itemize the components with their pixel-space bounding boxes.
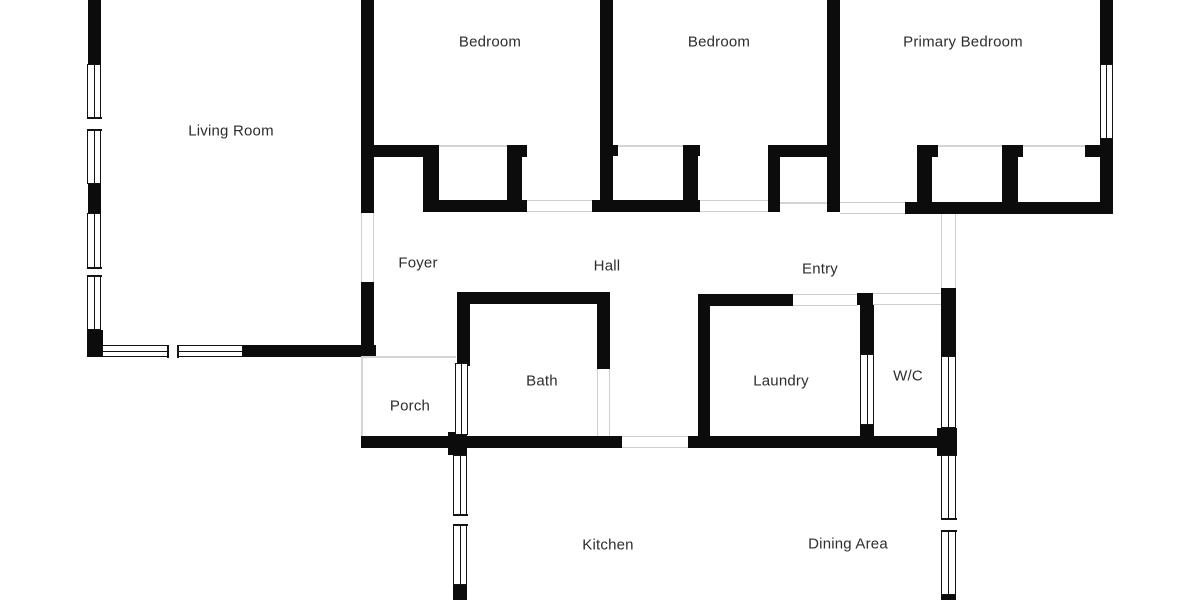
wall-primary-closet-a-left-stub [917,145,938,157]
room-label-foyer: Foyer [398,255,437,272]
room-label-entry: Entry [802,261,838,278]
room-label-bedroom-2: Bedroom [688,34,750,51]
entry-nook-opening-line [780,202,827,204]
wall-bath-east [597,292,610,369]
window-divider [87,267,102,277]
door-opening-bedroom2 [700,200,768,212]
wall-primary-east-mid [1100,138,1113,214]
wall-bedroom1-bedroom2-divider [600,0,613,212]
window-dining-east [941,455,956,595]
wall-bedroom1-closet-right-stub [507,145,527,157]
door-opening-wc [873,293,941,305]
window-wc-east [941,356,956,428]
window-kitchen-west [453,455,467,585]
wall-bath-north [457,292,610,304]
room-label-bedroom-1: Bedroom [459,34,521,51]
room-label-dining-area: Dining Area [808,536,888,553]
primary-closet-b-opening-line [1023,145,1085,147]
room-label-living-room: Living Room [188,123,274,140]
wall-kitchen-west-block [448,432,467,455]
wall-wc-east-cap [941,288,956,298]
wall-entry-north [905,202,1113,214]
window-laundry-wc [860,354,874,425]
door-opening-bath [597,369,610,436]
door-opening-bedroom1 [527,200,592,212]
door-opening-entry-front [941,214,956,288]
wall-living-room-west-mid [88,183,101,215]
wall-bath-west [457,292,470,366]
porch-west-boundary-line [361,357,363,436]
window-primary-east [1100,64,1113,139]
window-living-room-west-1 [87,64,101,184]
wall-living-room-east-top [361,0,374,213]
wall-bedroom2-closet-right-stub [683,145,700,156]
primary-closet-a-opening-line [938,145,1002,147]
wall-laundry-north [698,294,793,306]
wall-bedroom2-south-east [768,145,828,157]
window-porch-bath [455,363,468,435]
room-label-laundry: Laundry [753,373,809,390]
bedroom1-closet-opening-line [439,145,507,147]
wall-south-east-section [688,436,957,448]
wall-kitchen-west-bottom [453,584,467,600]
door-opening-living-room [361,213,374,282]
room-label-primary-bedroom: Primary Bedroom [903,34,1023,51]
wall-living-room-southwest-corner [87,330,103,357]
wall-dining-east-cap [941,595,956,600]
wall-bedroom1-closet-left [423,145,439,203]
window-living-room-west-2 [87,213,101,330]
wall-laundry-west [698,294,710,448]
floor-plan: Living Room Bedroom Bedroom Primary Bedr… [0,0,1200,600]
wall-bedroom2-south-stub [600,145,618,156]
room-label-wc: W/C [893,368,923,385]
window-divider [167,345,179,358]
room-label-kitchen: Kitchen [582,537,633,554]
door-opening-primary-bedroom [840,202,905,214]
window-divider [453,514,468,526]
window-living-room-south [102,345,243,357]
door-opening-kitchen [622,436,688,448]
bedroom2-closet-opening-line [618,145,683,147]
wall-wc-west-upper [860,303,874,355]
wall-primary-east-top [1100,0,1113,66]
room-label-hall: Hall [594,258,621,275]
porch-north-boundary-line [361,356,456,358]
room-label-porch: Porch [390,398,430,415]
door-opening-laundry [793,294,857,306]
window-divider [87,117,102,131]
wall-south-west-section [361,436,622,448]
window-divider [941,518,957,532]
wall-living-room-west-top [88,0,101,66]
wall-hall-north-b [592,200,700,212]
room-label-bath: Bath [526,373,558,390]
wall-primary-closet-divider-stub [1002,145,1023,157]
wall-wc-east-upper [941,298,956,356]
wall-bedroom2-primary-divider [827,0,840,212]
wall-hall-north-a [423,200,527,212]
